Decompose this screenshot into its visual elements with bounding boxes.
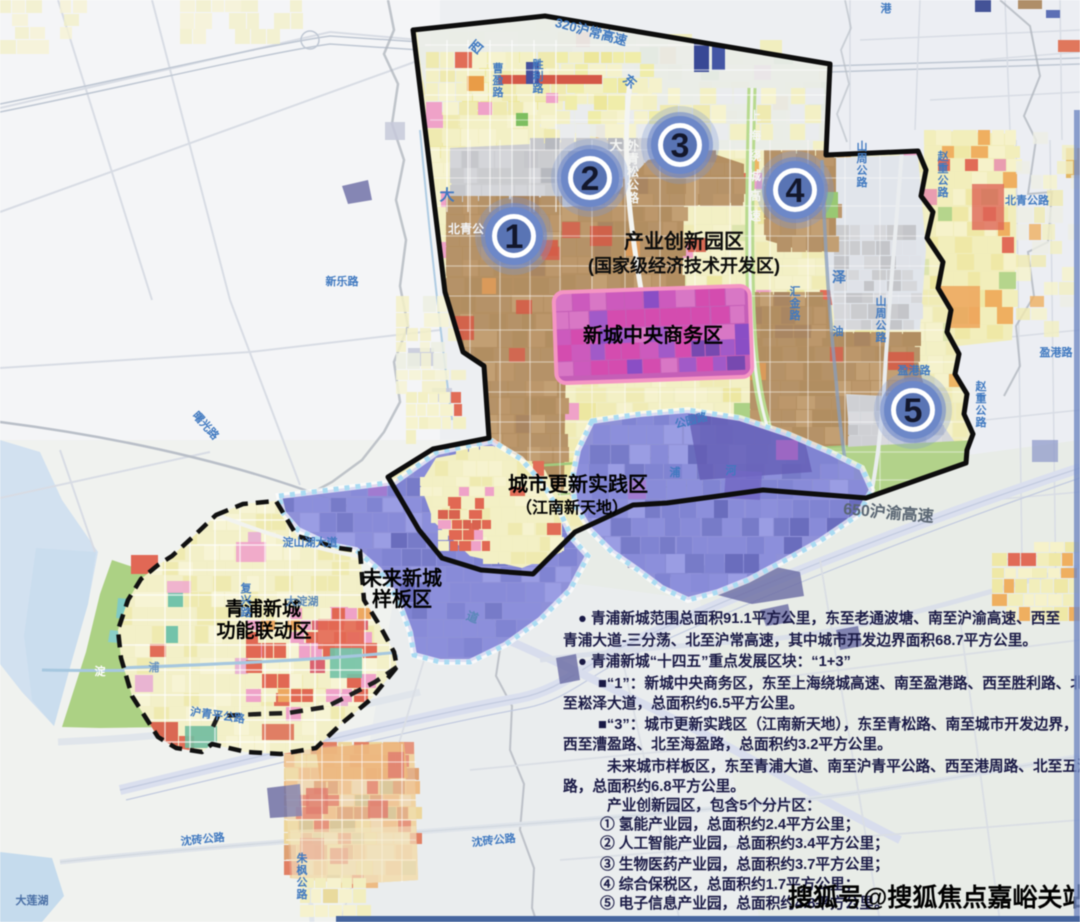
svg-text:● 青浦新城范围总面积91.1平方公里，东至老通波塘、南至沪: ● 青浦新城范围总面积91.1平方公里，东至老通波塘、南至沪渝高速、西至 [578, 609, 1060, 627]
svg-text:金: 金 [789, 296, 802, 310]
svg-text:② 人工智能产业园，总面积约3.4平方公里；: ② 人工智能产业园，总面积约3.4平方公里； [600, 834, 889, 852]
svg-text:路: 路 [533, 81, 545, 95]
svg-text:(国家级经济技术开发区): (国家级经济技术开发区) [588, 255, 780, 276]
svg-text:西至漕盈路、北至海盈路，总面积约3.2平方公里。: 西至漕盈路、北至海盈路，总面积约3.2平方公里。 [563, 735, 892, 753]
svg-text:路: 路 [790, 308, 802, 322]
svg-text:盈港路: 盈港路 [897, 363, 932, 377]
svg-text:2: 2 [581, 160, 600, 198]
svg-text:路: 路 [938, 185, 950, 199]
svg-text:河: 河 [726, 463, 737, 477]
svg-text:城市更新实践区: 城市更新实践区 [508, 472, 648, 496]
svg-text:周: 周 [876, 307, 887, 320]
svg-text:赵: 赵 [937, 149, 950, 163]
svg-text:绕: 绕 [749, 148, 761, 163]
svg-text:重: 重 [976, 391, 987, 405]
svg-text:盈: 盈 [492, 74, 504, 87]
svg-text:路: 路 [976, 415, 988, 429]
svg-text:路: 路 [857, 175, 869, 189]
svg-text:大: 大 [609, 138, 622, 153]
svg-text:搜狐号@搜狐焦点嘉峪关站: 搜狐号@搜狐焦点嘉峪关站 [788, 883, 1080, 912]
svg-text:盈港路: 盈港路 [1039, 345, 1074, 359]
svg-text:1: 1 [505, 218, 524, 256]
svg-text:周: 周 [857, 152, 868, 165]
svg-text:北青公路: 北青公路 [1005, 193, 1050, 207]
svg-text:路: 路 [241, 605, 253, 619]
svg-text:胜: 胜 [532, 57, 544, 71]
svg-text:速: 速 [749, 208, 761, 223]
svg-text:大淀湖: 大淀湖 [286, 594, 319, 608]
svg-text:兴: 兴 [241, 593, 252, 607]
svg-text:枫: 枫 [297, 863, 308, 877]
svg-text:朱: 朱 [296, 851, 309, 865]
svg-text:■“1”：新城中央商务区，东至上海绕城高速、南至盈港路、西至: ■“1”：新城中央商务区，东至上海绕城高速、南至盈港路、西至胜利路、北 [598, 674, 1080, 692]
svg-text:重: 重 [938, 161, 949, 175]
svg-text:油: 油 [833, 324, 844, 338]
svg-text:大莲湖: 大莲湖 [16, 893, 49, 907]
svg-text:山: 山 [857, 139, 868, 153]
svg-text:■“3”：城市更新实践区（江南新天地），东至青松路、南至城市: ■“3”：城市更新实践区（江南新天地），东至青松路、南至城市开发边界， [598, 715, 1078, 733]
svg-text:公: 公 [857, 164, 868, 177]
svg-text:公: 公 [627, 178, 639, 192]
svg-text:青: 青 [627, 151, 639, 166]
svg-text:北青公: 北青公 [448, 221, 484, 236]
svg-text:产业创新园区，包含5个分片区：: 产业创新园区，包含5个分片区： [607, 796, 821, 814]
svg-text:公: 公 [876, 319, 887, 332]
svg-text:4: 4 [786, 172, 805, 210]
svg-text:（江南新天地）: （江南新天地） [516, 498, 628, 517]
svg-text:淀: 淀 [95, 664, 107, 678]
svg-text:③ 生物医药产业园，总面积约3.7平方公里；: ③ 生物医药产业园，总面积约3.7平方公里； [600, 855, 889, 873]
svg-text:公: 公 [976, 404, 987, 417]
svg-text:路: 路 [876, 330, 888, 344]
svg-text:城: 城 [749, 168, 761, 183]
svg-text:复: 复 [240, 581, 253, 595]
svg-text:新乐路: 新乐路 [326, 274, 360, 288]
svg-text:浦: 浦 [670, 465, 681, 479]
svg-text:大: 大 [439, 186, 454, 204]
svg-text:● 青浦新城“十四五”重点发展区块：“1+3”: ● 青浦新城“十四五”重点发展区块：“1+3” [578, 652, 851, 670]
svg-text:高: 高 [749, 188, 761, 203]
svg-text:5: 5 [904, 392, 923, 430]
svg-text:① 氢能产业园，总面积约2.4平方公里；: ① 氢能产业园，总面积约2.4平方公里； [600, 815, 860, 833]
svg-text:路: 路 [493, 85, 505, 99]
svg-text:上: 上 [749, 108, 761, 123]
svg-text:泽: 泽 [832, 269, 846, 285]
svg-text:曹: 曹 [493, 61, 504, 75]
svg-text:海: 海 [749, 128, 761, 143]
svg-text:路，总面积约6.8平方公里。: 路，总面积约6.8平方公里。 [563, 777, 745, 795]
svg-text:利: 利 [533, 69, 544, 83]
svg-text:3: 3 [671, 127, 690, 165]
svg-text:港: 港 [881, 1, 893, 15]
svg-text:功能联动区: 功能联动区 [216, 619, 311, 642]
svg-text:产业创新园区: 产业创新园区 [624, 229, 744, 253]
svg-text:赵: 赵 [975, 379, 988, 393]
svg-text:公: 公 [297, 876, 308, 889]
svg-text:青浦大道-三分荡、北至沪常高速，其中城市开发边界面积68.7: 青浦大道-三分荡、北至沪常高速，其中城市开发边界面积68.7平方公里。 [563, 631, 1037, 649]
svg-text:山: 山 [876, 294, 887, 308]
svg-text:汇: 汇 [790, 285, 801, 298]
svg-text:松: 松 [627, 164, 639, 179]
svg-text:淀山湖大道: 淀山湖大道 [283, 535, 338, 549]
svg-text:路: 路 [627, 190, 640, 205]
svg-text:样板区: 样板区 [372, 587, 432, 611]
svg-text:新城中央商务区: 新城中央商务区 [583, 323, 723, 347]
svg-text:未来城市样板区，东至青浦大道、南至沪青平公路、西至港周路、北: 未来城市样板区，东至青浦大道、南至沪青平公路、西至港周路、北至五浦 [606, 757, 1080, 775]
svg-text:未来新城: 未来新城 [362, 566, 442, 590]
svg-text:至崧泽大道，总面积约6.5平方公里。: 至崧泽大道，总面积约6.5平方公里。 [563, 694, 804, 712]
svg-text:外: 外 [627, 138, 639, 153]
svg-text:公: 公 [938, 174, 949, 187]
svg-text:路: 路 [297, 887, 309, 901]
svg-text:浦: 浦 [149, 660, 160, 674]
